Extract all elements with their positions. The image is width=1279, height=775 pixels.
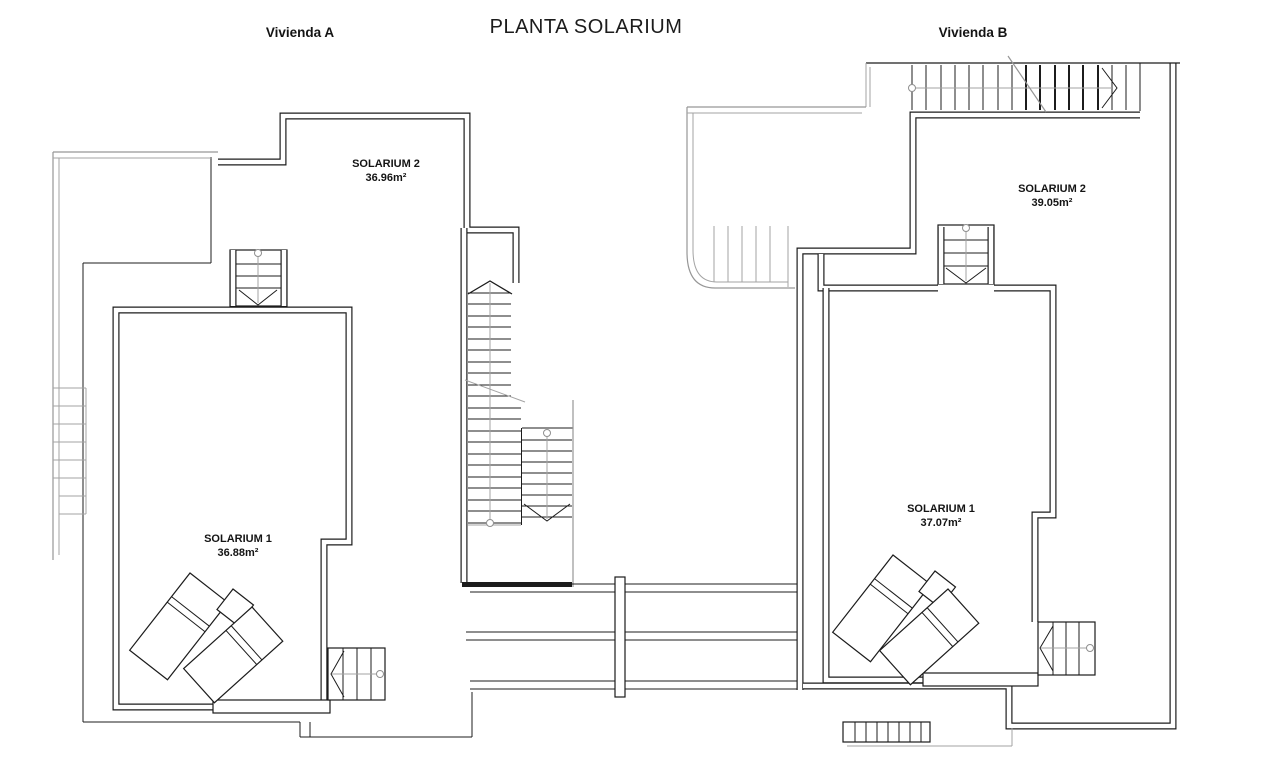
stair-node bbox=[963, 225, 970, 232]
drawing-title: PLANTA SOLARIUM bbox=[490, 16, 683, 38]
terrace-edge bbox=[53, 152, 218, 560]
bottom-stair-strip-b bbox=[843, 722, 1012, 746]
room-name: SOLARIUM 1 bbox=[204, 533, 272, 545]
room-label-solarium1-b: SOLARIUM 1 37.07m² bbox=[907, 503, 975, 529]
central-staircase bbox=[462, 281, 573, 587]
room-area: 36.96m² bbox=[366, 172, 407, 184]
vivienda-b-label: Vivienda B bbox=[939, 25, 1008, 40]
interior-stair-b bbox=[938, 225, 994, 285]
gray-terrace-a bbox=[53, 152, 218, 560]
step-band-a bbox=[213, 700, 330, 713]
stair-box bbox=[843, 722, 930, 742]
terrace-edge-inner bbox=[53, 158, 212, 555]
break-line bbox=[465, 380, 525, 402]
exterior-stair-treads bbox=[53, 388, 86, 514]
interior-stair-a bbox=[230, 250, 287, 307]
stair-node bbox=[1087, 645, 1094, 652]
railing-post bbox=[615, 577, 625, 697]
terrace-edge-inner bbox=[687, 113, 862, 226]
stair-treads-lower bbox=[468, 408, 521, 523]
wall bbox=[821, 254, 938, 288]
wall bbox=[800, 115, 1140, 690]
stair-node bbox=[544, 430, 551, 437]
sun-loungers-b bbox=[833, 555, 979, 685]
room-label-solarium1-a: SOLARIUM 1 36.88m² bbox=[204, 533, 272, 559]
curved-stair-treads bbox=[714, 226, 788, 287]
step-band-b bbox=[923, 673, 1038, 686]
gray-terrace-b bbox=[687, 107, 866, 288]
room-name: SOLARIUM 1 bbox=[907, 503, 975, 515]
room-area: 39.05m² bbox=[1032, 197, 1073, 209]
top-staircase-b bbox=[866, 56, 1180, 112]
room-name: SOLARIUM 2 bbox=[352, 158, 420, 170]
stair-node bbox=[487, 520, 494, 527]
railing-bridge bbox=[466, 577, 797, 697]
room-area: 37.07m² bbox=[921, 517, 962, 529]
room-label-solarium2-a: SOLARIUM 2 36.96m² bbox=[352, 158, 420, 184]
curved-stair-inner bbox=[693, 226, 788, 282]
room-label-solarium2-b: SOLARIUM 2 39.05m² bbox=[1018, 183, 1086, 209]
stair-node bbox=[377, 671, 384, 678]
railing-rails bbox=[466, 584, 797, 689]
band-left-connector bbox=[866, 63, 870, 107]
sun-loungers-a bbox=[130, 573, 283, 703]
corner-stair-a bbox=[328, 648, 385, 700]
stair-node bbox=[255, 250, 262, 257]
wall bbox=[800, 115, 1140, 690]
terrace-edge bbox=[687, 107, 866, 232]
wall bbox=[994, 288, 1053, 622]
stair-centerline bbox=[468, 283, 521, 525]
wall bbox=[821, 254, 938, 288]
floor-plan-page: PLANTA SOLARIUM Vivienda A Vivienda B SO… bbox=[0, 0, 1279, 775]
floor-plan-drawing: PLANTA SOLARIUM Vivienda A Vivienda B SO… bbox=[0, 0, 1279, 775]
corner-stair-b bbox=[1038, 622, 1095, 675]
vivienda-a-label: Vivienda A bbox=[266, 25, 335, 40]
room-area: 36.88m² bbox=[218, 547, 259, 559]
wall bbox=[994, 288, 1053, 622]
room-name: SOLARIUM 2 bbox=[1018, 183, 1086, 195]
curved-stair-outer bbox=[687, 232, 795, 288]
stair-node bbox=[909, 85, 916, 92]
